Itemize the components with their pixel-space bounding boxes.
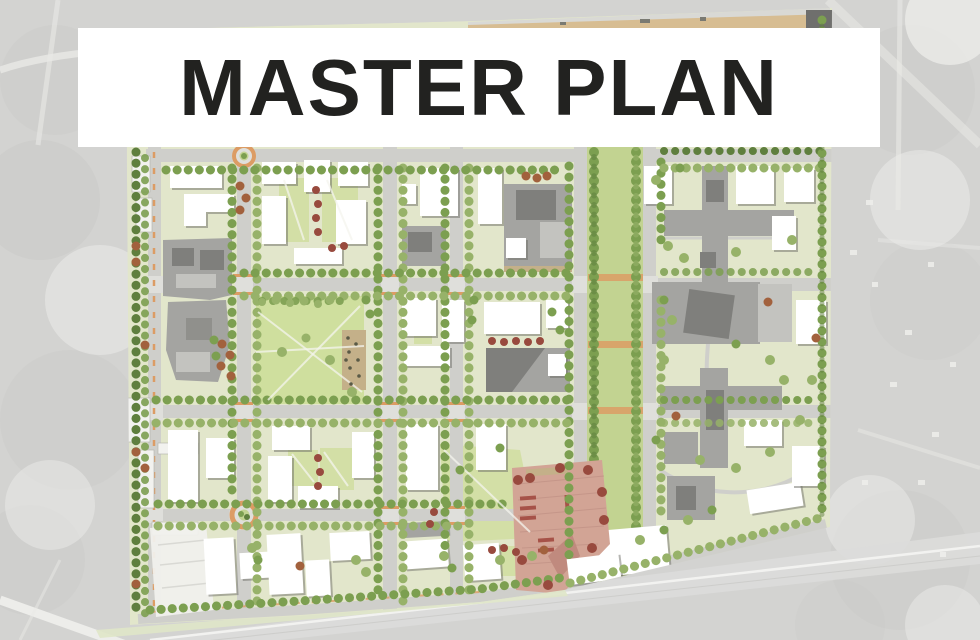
title-banner: MASTER PLAN xyxy=(78,28,880,147)
page-title: MASTER PLAN xyxy=(179,48,779,128)
existing-gray-buildings xyxy=(163,238,232,382)
roundabout-north xyxy=(232,144,256,168)
master-plan-page: MASTER PLAN xyxy=(0,0,980,640)
